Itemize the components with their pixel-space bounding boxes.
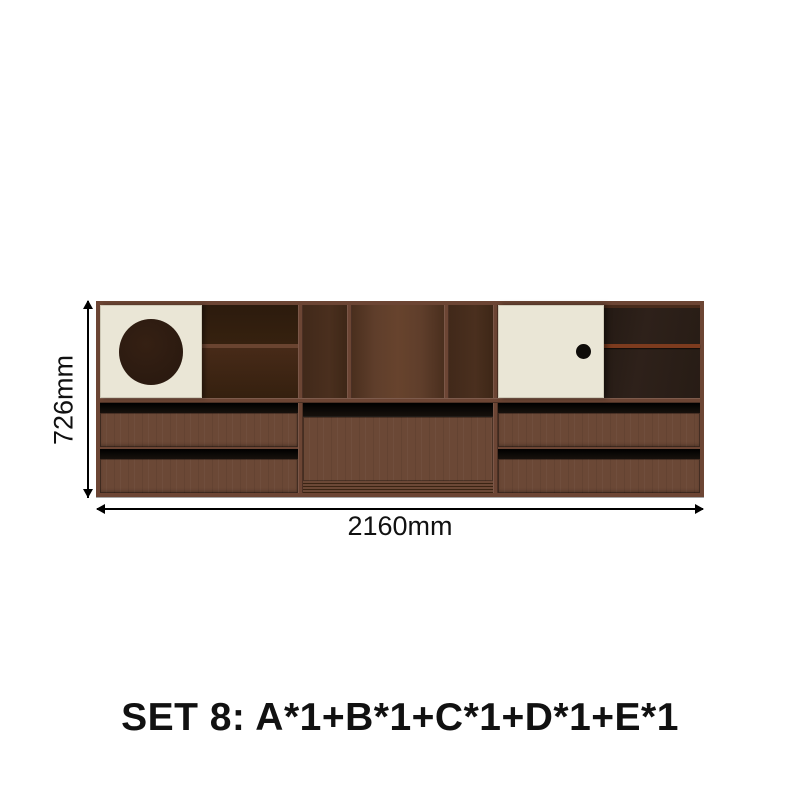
- glass-shelf-board: [604, 344, 700, 348]
- drawer-pull-recess: [498, 403, 700, 413]
- open-compartment-center: [352, 305, 444, 398]
- finger-hole: [576, 344, 591, 359]
- smoked-glass-section: [604, 305, 700, 398]
- sliding-door-circle: [100, 305, 202, 398]
- sliding-door-finger-hole: [498, 305, 604, 398]
- circle-cutout: [119, 319, 183, 385]
- shelf-upper-compartment: [202, 305, 298, 344]
- sideboard-illustration: [96, 301, 704, 497]
- height-dimension-label: 726mm: [49, 355, 80, 445]
- drawer: [498, 403, 700, 447]
- drawer-front: [100, 459, 298, 493]
- open-shelf-section: [202, 305, 298, 398]
- arrow-down-icon: [83, 489, 93, 498]
- module-glass-door-cabinet: [498, 305, 700, 398]
- module-open-compartments: [303, 305, 493, 398]
- arrow-up-icon: [83, 300, 93, 309]
- drawer-unit-right: [498, 403, 700, 493]
- drop-front-unit: [303, 403, 493, 493]
- product-dimension-diagram: 726mm 2160mm SET 8: A*1+B*1+C*1+D*1+E*1: [0, 0, 800, 800]
- drop-front-panel: [303, 417, 493, 481]
- drawer-pull-recess: [100, 449, 298, 459]
- drawer-front: [498, 459, 700, 493]
- drawer-pull-recess: [498, 449, 700, 459]
- drawer: [498, 449, 700, 493]
- open-compartment-right: [449, 305, 493, 398]
- drawer: [100, 449, 298, 493]
- module-circle-door-cabinet: [100, 305, 298, 398]
- cabinet-top-row: [100, 305, 700, 398]
- drawer: [100, 403, 298, 447]
- drawer-pull-recess: [100, 403, 298, 413]
- shelf-lower-compartment: [202, 348, 298, 398]
- drawer-front: [498, 413, 700, 447]
- glass-top-rail: [604, 305, 700, 308]
- width-dimension-line: [97, 508, 703, 510]
- open-compartment-left: [303, 305, 347, 398]
- cabinet-bottom-row: [100, 403, 700, 493]
- slatted-base: [303, 481, 493, 493]
- height-dimension-line: [87, 301, 89, 498]
- drop-front-pull-recess: [303, 403, 493, 417]
- drawer-unit-left: [100, 403, 298, 493]
- drawer-front: [100, 413, 298, 447]
- width-dimension-label: 2160mm: [0, 511, 800, 542]
- set-contents-caption: SET 8: A*1+B*1+C*1+D*1+E*1: [0, 696, 800, 740]
